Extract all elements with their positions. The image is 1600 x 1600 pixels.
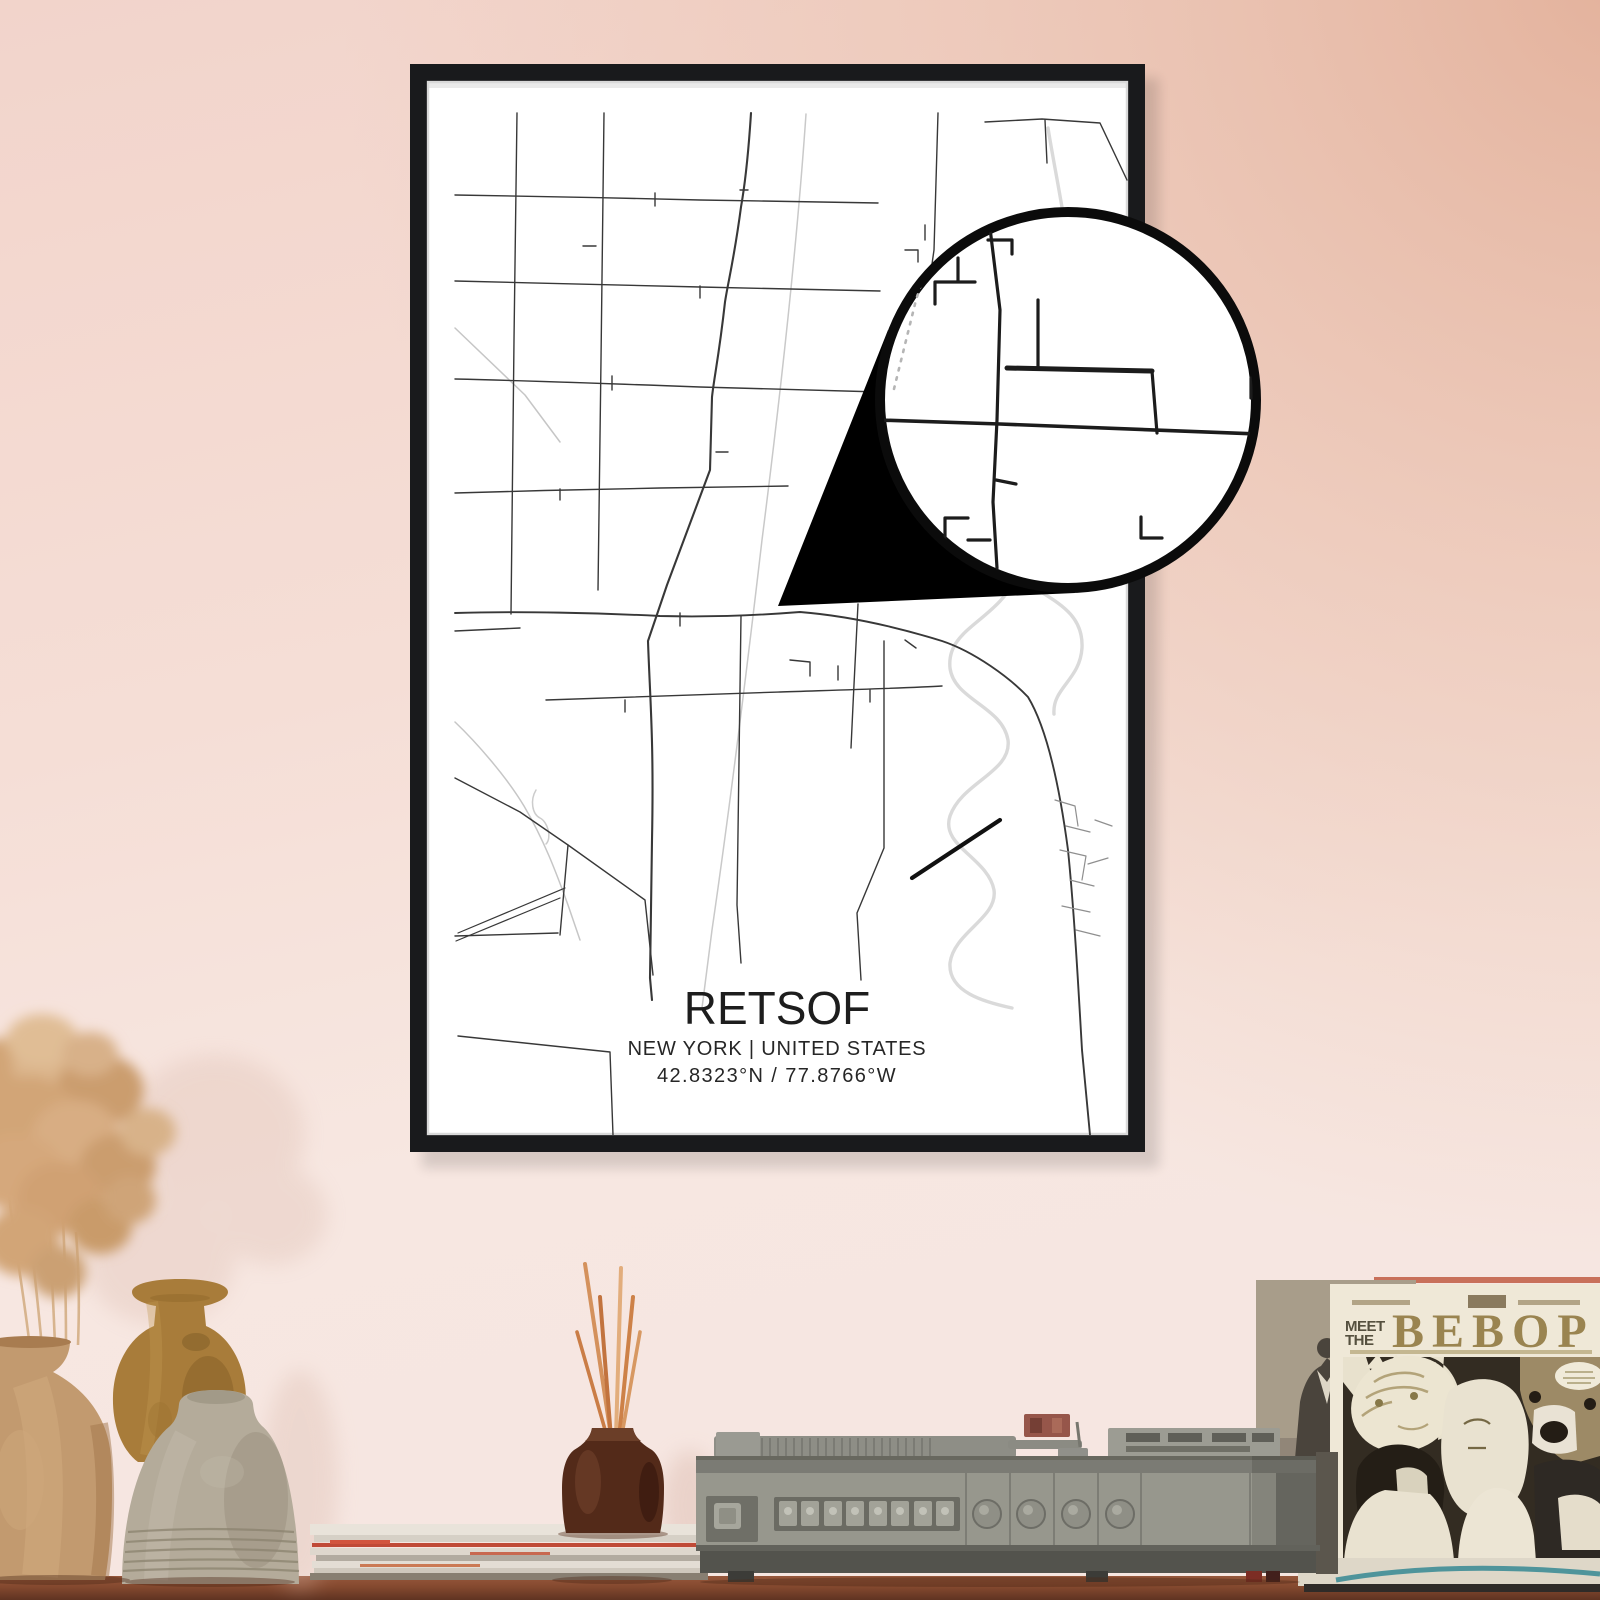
- svg-text:42.8323°N / 77.8766°W: 42.8323°N / 77.8766°W: [657, 1065, 897, 1087]
- svg-text:RETSOF: RETSOF: [684, 982, 871, 1034]
- svg-text:THE: THE: [1345, 1332, 1374, 1349]
- svg-text:NEW YORK | UNITED STATES: NEW YORK | UNITED STATES: [628, 1038, 927, 1060]
